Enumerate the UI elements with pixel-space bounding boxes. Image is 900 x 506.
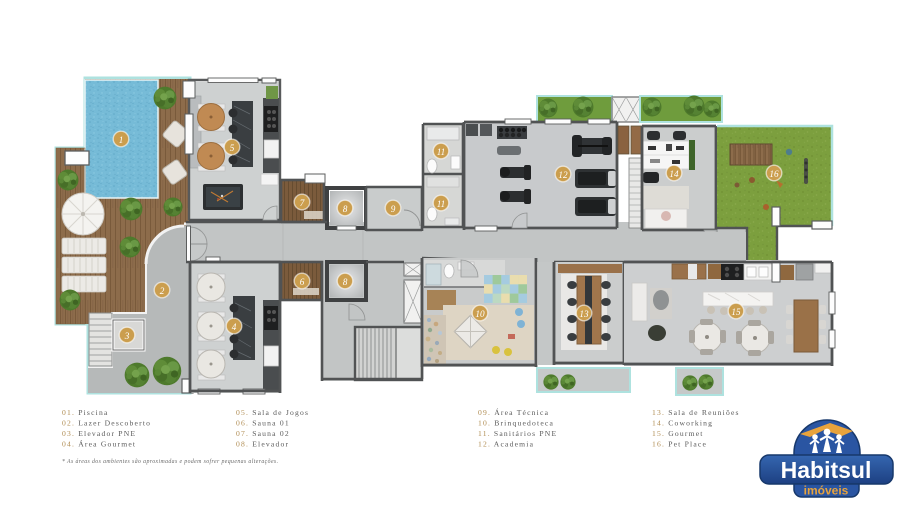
svg-text:09. Área Técnica: 09. Área Técnica	[478, 407, 549, 417]
svg-text:05. Sala de Jogos: 05. Sala de Jogos	[236, 408, 309, 417]
svg-text:04. Área Gourmet: 04. Área Gourmet	[62, 439, 136, 449]
svg-text:8: 8	[343, 277, 348, 287]
svg-text:7: 7	[300, 198, 305, 208]
svg-text:08. Elevador: 08. Elevador	[236, 440, 289, 449]
svg-text:06. Sauna 01: 06. Sauna 01	[236, 419, 290, 428]
svg-text:13: 13	[579, 309, 589, 319]
svg-text:3: 3	[124, 331, 130, 341]
svg-text:03. Elevador PNE: 03. Elevador PNE	[62, 429, 136, 438]
svg-text:14. Coworking: 14. Coworking	[652, 419, 713, 428]
svg-text:9: 9	[391, 204, 396, 214]
svg-text:13. Sala de Reuniões: 13. Sala de Reuniões	[652, 408, 740, 417]
svg-text:14: 14	[669, 169, 679, 179]
svg-text:07. Sauna 02: 07. Sauna 02	[236, 429, 290, 438]
svg-text:16: 16	[769, 169, 779, 179]
svg-text:10. Brinquedoteca: 10. Brinquedoteca	[478, 419, 554, 428]
svg-text:* As áreas dos ambientes são a: * As áreas dos ambientes são aproximadas…	[62, 458, 278, 465]
svg-text:imóveis: imóveis	[804, 484, 849, 498]
svg-text:2: 2	[160, 286, 165, 296]
svg-text:Habitsul: Habitsul	[781, 457, 872, 483]
svg-text:15. Gourmet: 15. Gourmet	[652, 429, 704, 438]
svg-text:11: 11	[437, 147, 446, 157]
svg-text:4: 4	[232, 322, 237, 332]
svg-text:1: 1	[119, 135, 124, 145]
svg-text:12: 12	[558, 170, 568, 180]
svg-text:11: 11	[437, 199, 446, 209]
svg-text:6: 6	[300, 277, 305, 287]
svg-text:10: 10	[475, 309, 485, 319]
svg-text:11. Sanitários PNE: 11. Sanitários PNE	[478, 429, 557, 438]
svg-text:02. Lazer Descoberto: 02. Lazer Descoberto	[62, 419, 151, 428]
svg-text:15: 15	[731, 307, 741, 317]
svg-text:5: 5	[230, 143, 235, 153]
svg-text:16. Pet Place: 16. Pet Place	[652, 440, 707, 449]
svg-text:01. Piscina: 01. Piscina	[62, 408, 109, 417]
svg-text:8: 8	[343, 204, 348, 214]
svg-text:12. Academia: 12. Academia	[478, 440, 534, 449]
